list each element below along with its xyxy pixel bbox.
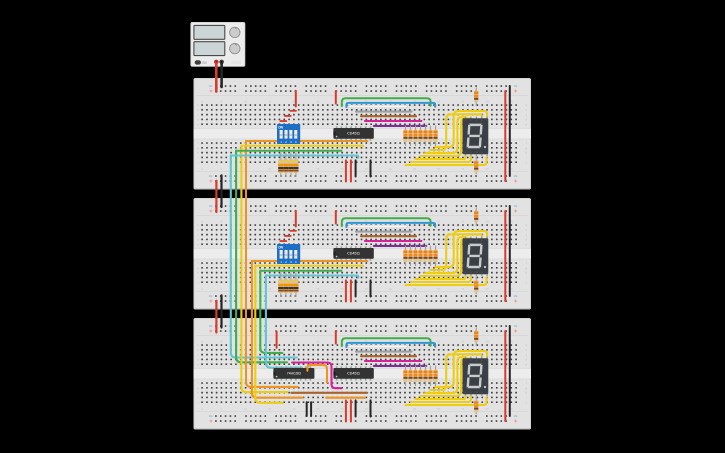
svg-text:CD4511: CD4511 xyxy=(347,252,360,256)
svg-text:ON: ON xyxy=(278,126,283,130)
svg-text:74HC283: 74HC283 xyxy=(287,372,301,376)
svg-text:ON: ON xyxy=(278,246,283,250)
svg-text:CD4511: CD4511 xyxy=(347,372,360,376)
svg-text:CD4511: CD4511 xyxy=(347,132,360,136)
